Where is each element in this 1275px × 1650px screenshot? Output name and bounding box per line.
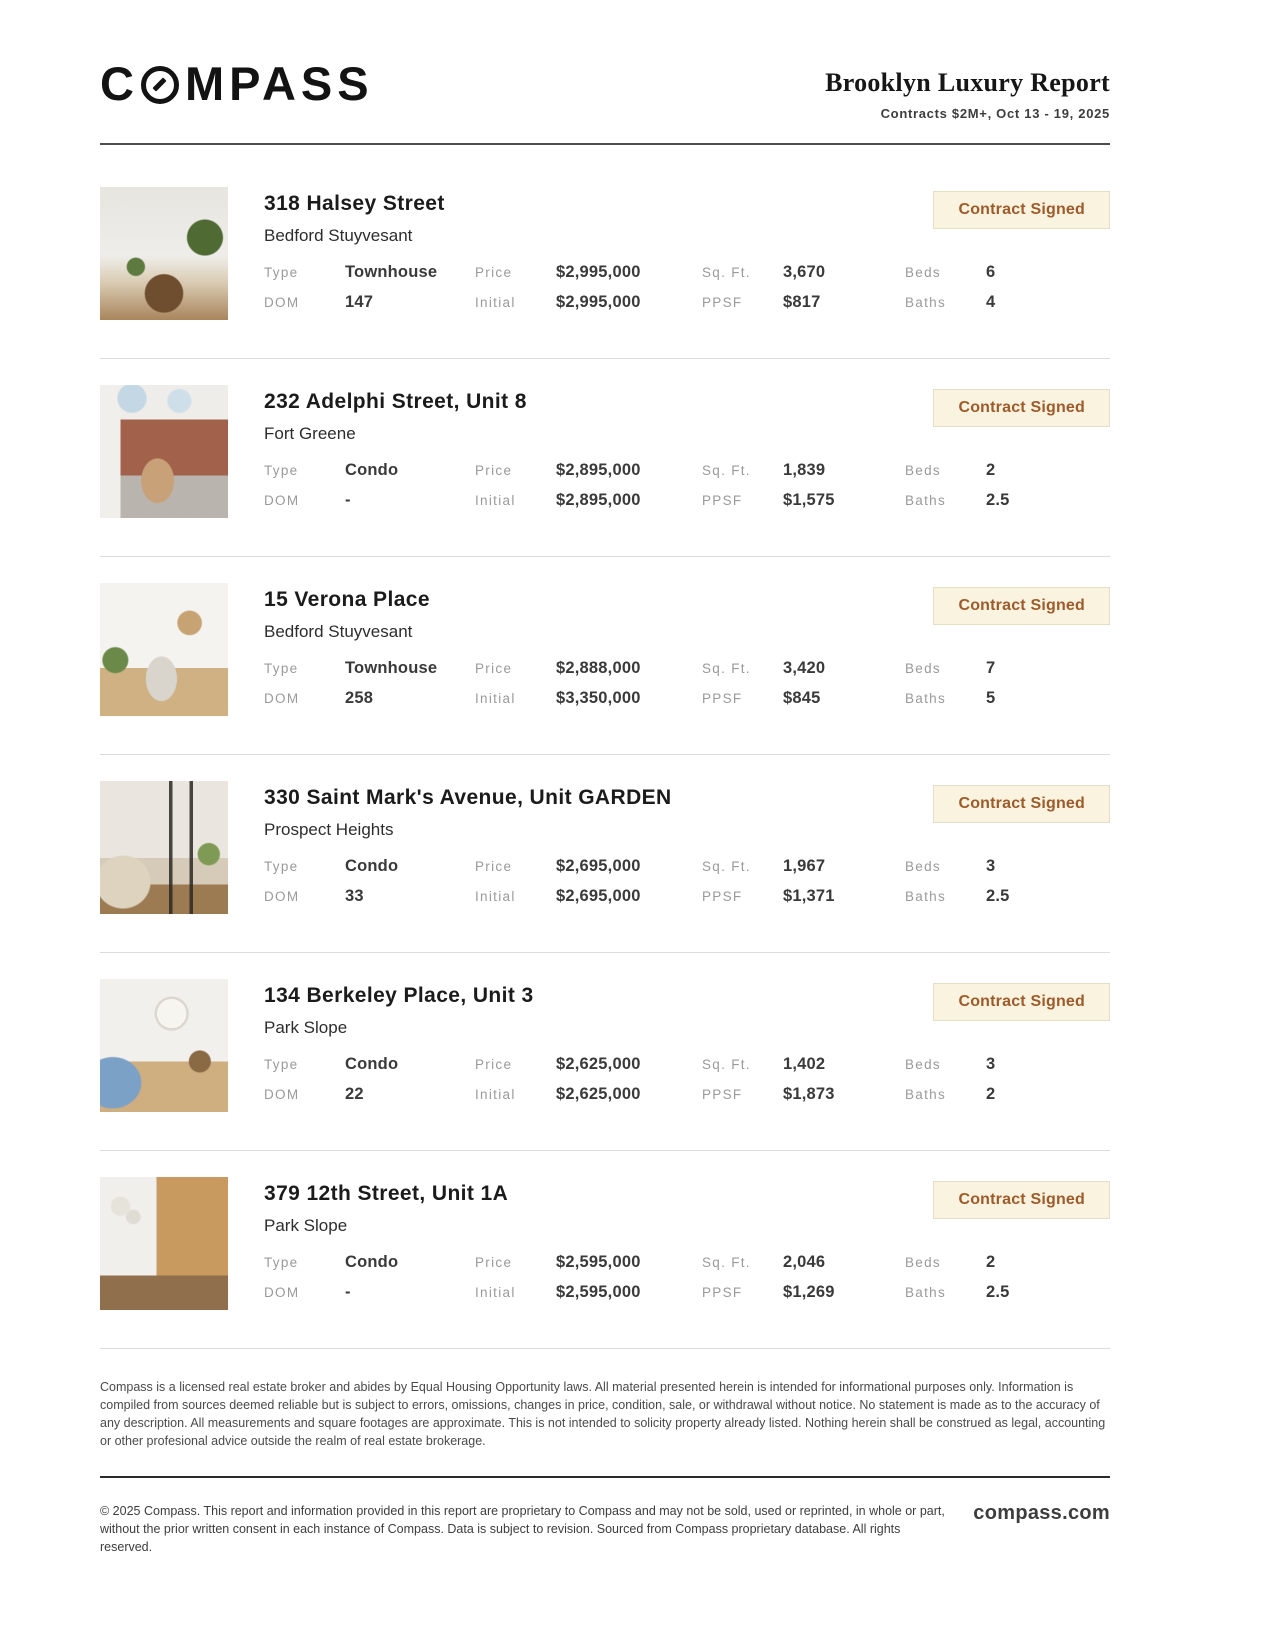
contract-signed-badge: Contract Signed	[933, 983, 1110, 1021]
baths-label: Baths	[905, 295, 986, 310]
initial-value: $2,595,000	[556, 1283, 641, 1302]
price-label: Price	[475, 1057, 556, 1072]
initial-label: Initial	[475, 691, 556, 706]
type-label: Type	[264, 1057, 345, 1072]
contract-signed-badge: Contract Signed	[933, 785, 1110, 823]
beds-value: 7	[986, 659, 995, 678]
price-value: $2,625,000	[556, 1055, 641, 1074]
initial-value: $2,625,000	[556, 1085, 641, 1104]
disclaimer-text: Compass is a licensed real estate broker…	[100, 1378, 1110, 1450]
dom-value: 33	[345, 887, 364, 906]
listing-row-3: 15 Verona Place Bedford Stuyvesant Contr…	[100, 557, 1110, 755]
dom-value: -	[345, 491, 351, 510]
price-label: Price	[475, 1255, 556, 1270]
beds-label: Beds	[905, 265, 986, 280]
contract-signed-badge: Contract Signed	[933, 191, 1110, 229]
listing-row-1: 318 Halsey Street Bedford Stuyvesant Con…	[100, 145, 1110, 359]
dom-label: DOM	[264, 295, 345, 310]
beds-label: Beds	[905, 1057, 986, 1072]
price-label: Price	[475, 661, 556, 676]
contract-signed-badge: Contract Signed	[933, 1181, 1110, 1219]
copyright-text: © 2025 Compass. This report and informat…	[100, 1502, 950, 1556]
type-value: Condo	[345, 857, 398, 876]
footer-divider	[100, 1476, 1110, 1478]
ppsf-value: $1,575	[783, 491, 835, 510]
ppsf-label: PPSF	[702, 1087, 783, 1102]
price-value: $2,595,000	[556, 1253, 641, 1272]
listing-stats: TypeCondo Price$2,595,000 Sq. Ft.2,046 B…	[264, 1253, 1110, 1302]
listing-content: 134 Berkeley Place, Unit 3 Park Slope Co…	[264, 979, 1110, 1112]
listing-photo	[100, 385, 228, 518]
type-label: Type	[264, 1255, 345, 1270]
listing-stats: TypeTownhouse Price$2,995,000 Sq. Ft.3,6…	[264, 263, 1110, 312]
listing-neighborhood: Bedford Stuyvesant	[264, 226, 445, 246]
listing-photo	[100, 1177, 228, 1310]
report-title: Brooklyn Luxury Report	[825, 68, 1110, 98]
price-value: $2,695,000	[556, 857, 641, 876]
sqft-label: Sq. Ft.	[702, 859, 783, 874]
dom-value: -	[345, 1283, 351, 1302]
type-label: Type	[264, 463, 345, 478]
contract-signed-badge: Contract Signed	[933, 587, 1110, 625]
price-value: $2,888,000	[556, 659, 641, 678]
listing-address: 379 12th Street, Unit 1A	[264, 1181, 508, 1206]
compass-com-link[interactable]: compass.com	[973, 1502, 1110, 1525]
baths-value: 5	[986, 689, 995, 708]
beds-value: 2	[986, 1253, 995, 1272]
listing-photo	[100, 583, 228, 716]
baths-label: Baths	[905, 1087, 986, 1102]
type-value: Townhouse	[345, 659, 437, 678]
initial-label: Initial	[475, 493, 556, 508]
sqft-label: Sq. Ft.	[702, 1057, 783, 1072]
dom-label: DOM	[264, 889, 345, 904]
footer-row: © 2025 Compass. This report and informat…	[100, 1502, 1110, 1556]
price-value: $2,895,000	[556, 461, 641, 480]
type-value: Condo	[345, 1253, 398, 1272]
beds-label: Beds	[905, 1255, 986, 1270]
listing-content: 232 Adelphi Street, Unit 8 Fort Greene C…	[264, 385, 1110, 518]
listing-stats: TypeCondo Price$2,695,000 Sq. Ft.1,967 B…	[264, 857, 1110, 906]
price-label: Price	[475, 265, 556, 280]
baths-label: Baths	[905, 691, 986, 706]
beds-label: Beds	[905, 859, 986, 874]
type-value: Condo	[345, 461, 398, 480]
listing-address: 330 Saint Mark's Avenue, Unit GARDEN	[264, 785, 672, 810]
dom-value: 258	[345, 689, 373, 708]
beds-value: 6	[986, 263, 995, 282]
beds-value: 2	[986, 461, 995, 480]
price-value: $2,995,000	[556, 263, 641, 282]
initial-value: $2,695,000	[556, 887, 641, 906]
ppsf-value: $1,873	[783, 1085, 835, 1104]
type-label: Type	[264, 859, 345, 874]
initial-label: Initial	[475, 889, 556, 904]
ppsf-label: PPSF	[702, 691, 783, 706]
sqft-value: 2,046	[783, 1253, 825, 1272]
listing-stats: TypeTownhouse Price$2,888,000 Sq. Ft.3,4…	[264, 659, 1110, 708]
listing-stats: TypeCondo Price$2,625,000 Sq. Ft.1,402 B…	[264, 1055, 1110, 1104]
initial-label: Initial	[475, 1285, 556, 1300]
listing-address: 134 Berkeley Place, Unit 3	[264, 983, 534, 1008]
beds-value: 3	[986, 1055, 995, 1074]
listing-row-6: 379 12th Street, Unit 1A Park Slope Cont…	[100, 1151, 1110, 1349]
report-header: C MPASS Brooklyn Luxury Report Contracts…	[100, 0, 1110, 121]
listing-photo	[100, 187, 228, 320]
listing-neighborhood: Prospect Heights	[264, 820, 672, 840]
listing-content: 15 Verona Place Bedford Stuyvesant Contr…	[264, 583, 1110, 716]
listing-photo	[100, 979, 228, 1112]
baths-value: 2	[986, 1085, 995, 1104]
ppsf-label: PPSF	[702, 889, 783, 904]
type-label: Type	[264, 661, 345, 676]
sqft-label: Sq. Ft.	[702, 463, 783, 478]
compass-logo: C MPASS	[100, 60, 374, 107]
baths-label: Baths	[905, 493, 986, 508]
listing-stats: TypeCondo Price$2,895,000 Sq. Ft.1,839 B…	[264, 461, 1110, 510]
ppsf-value: $817	[783, 293, 821, 312]
dom-label: DOM	[264, 691, 345, 706]
beds-label: Beds	[905, 463, 986, 478]
dom-value: 22	[345, 1085, 364, 1104]
sqft-value: 1,839	[783, 461, 825, 480]
sqft-label: Sq. Ft.	[702, 265, 783, 280]
baths-label: Baths	[905, 889, 986, 904]
report-subtitle: Contracts $2M+, Oct 13 - 19, 2025	[825, 106, 1110, 121]
dom-label: DOM	[264, 1285, 345, 1300]
listing-photo	[100, 781, 228, 914]
dom-label: DOM	[264, 1087, 345, 1102]
price-label: Price	[475, 463, 556, 478]
initial-label: Initial	[475, 295, 556, 310]
dom-label: DOM	[264, 493, 345, 508]
sqft-value: 1,967	[783, 857, 825, 876]
report-title-block: Brooklyn Luxury Report Contracts $2M+, O…	[825, 60, 1110, 121]
contract-signed-badge: Contract Signed	[933, 389, 1110, 427]
type-value: Condo	[345, 1055, 398, 1074]
listing-row-5: 134 Berkeley Place, Unit 3 Park Slope Co…	[100, 953, 1110, 1151]
sqft-value: 1,402	[783, 1055, 825, 1074]
compass-logo-mpass: MPASS	[185, 60, 374, 107]
compass-o-icon	[141, 66, 179, 104]
listing-address: 232 Adelphi Street, Unit 8	[264, 389, 527, 414]
compass-logo-c: C	[100, 60, 139, 107]
beds-value: 3	[986, 857, 995, 876]
initial-value: $2,895,000	[556, 491, 641, 510]
type-value: Townhouse	[345, 263, 437, 282]
report-page: C MPASS Brooklyn Luxury Report Contracts…	[100, 0, 1110, 1556]
compass-needle-icon	[153, 77, 167, 91]
baths-value: 2.5	[986, 491, 1010, 510]
ppsf-label: PPSF	[702, 295, 783, 310]
price-label: Price	[475, 859, 556, 874]
listing-row-4: 330 Saint Mark's Avenue, Unit GARDEN Pro…	[100, 755, 1110, 953]
listing-address: 318 Halsey Street	[264, 191, 445, 216]
ppsf-value: $1,269	[783, 1283, 835, 1302]
baths-value: 2.5	[986, 887, 1010, 906]
sqft-label: Sq. Ft.	[702, 1255, 783, 1270]
sqft-value: 3,670	[783, 263, 825, 282]
baths-value: 4	[986, 293, 995, 312]
dom-value: 147	[345, 293, 373, 312]
ppsf-value: $845	[783, 689, 821, 708]
type-label: Type	[264, 265, 345, 280]
initial-value: $2,995,000	[556, 293, 641, 312]
listing-row-2: 232 Adelphi Street, Unit 8 Fort Greene C…	[100, 359, 1110, 557]
beds-label: Beds	[905, 661, 986, 676]
listing-content: 318 Halsey Street Bedford Stuyvesant Con…	[264, 187, 1110, 320]
initial-label: Initial	[475, 1087, 556, 1102]
ppsf-value: $1,371	[783, 887, 835, 906]
listing-neighborhood: Fort Greene	[264, 424, 527, 444]
ppsf-label: PPSF	[702, 493, 783, 508]
baths-label: Baths	[905, 1285, 986, 1300]
ppsf-label: PPSF	[702, 1285, 783, 1300]
sqft-value: 3,420	[783, 659, 825, 678]
listing-neighborhood: Park Slope	[264, 1018, 534, 1038]
baths-value: 2.5	[986, 1283, 1010, 1302]
listing-neighborhood: Park Slope	[264, 1216, 508, 1236]
listing-content: 379 12th Street, Unit 1A Park Slope Cont…	[264, 1177, 1110, 1310]
sqft-label: Sq. Ft.	[702, 661, 783, 676]
listing-content: 330 Saint Mark's Avenue, Unit GARDEN Pro…	[264, 781, 1110, 914]
listing-neighborhood: Bedford Stuyvesant	[264, 622, 430, 642]
initial-value: $3,350,000	[556, 689, 641, 708]
listing-address: 15 Verona Place	[264, 587, 430, 612]
